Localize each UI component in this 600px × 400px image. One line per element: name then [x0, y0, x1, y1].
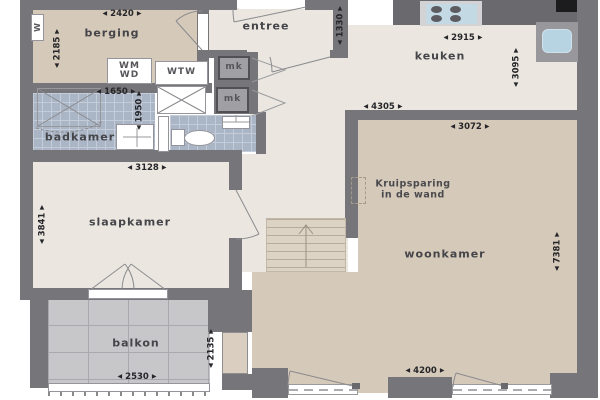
dim-value: 4305 — [371, 102, 395, 112]
dim-arrow-left: ◀ — [406, 368, 411, 374]
shaft-box — [157, 86, 206, 114]
burner-2 — [450, 6, 461, 13]
dim-keuken-width: ◀2915▶ — [433, 32, 493, 43]
dim-value: 2530 — [125, 372, 149, 382]
dim-woonkamer-height: ◀7381▶ — [552, 222, 563, 282]
dim-woonkamer-width-bottom: ◀4200▶ — [395, 365, 455, 376]
toilet-bowl — [184, 130, 215, 146]
dim-arrow-right: ▶ — [137, 11, 142, 17]
wall-badkamer-slaapkamer — [20, 150, 242, 162]
kitchen-sink — [542, 29, 572, 53]
hand-basin — [222, 116, 250, 129]
washer-dryer-box: WMWD — [107, 58, 152, 84]
room-label-slaapkamer: slaapkamer — [89, 216, 171, 229]
dim-value: 3128 — [135, 163, 159, 173]
floor-plan: W WMWD WTW mk mk — [0, 0, 600, 400]
dim-arrow-right: ▶ — [152, 374, 157, 380]
dim-value: 4200 — [413, 366, 437, 376]
dim-arrow-left: ◀ — [513, 82, 519, 87]
dim-arrow-left: ◀ — [118, 374, 123, 380]
dim-value: 3095 — [511, 56, 521, 80]
dim-arrow-right: ▶ — [440, 368, 445, 374]
wall-hall-woonkamer — [345, 110, 358, 238]
dim-value: 2420 — [110, 9, 134, 19]
room-label-berging: berging — [84, 27, 139, 40]
dim-arrow-left: ◀ — [364, 104, 369, 110]
dim-arrow-left: ◀ — [451, 124, 456, 130]
burner-3 — [431, 15, 442, 22]
wall-bottom-a — [252, 368, 288, 398]
door-toilet — [158, 116, 169, 152]
dim-value: 3072 — [458, 122, 482, 132]
wall-bottom-b — [388, 377, 452, 398]
door-woonkamer-balkon — [222, 332, 248, 374]
wall-right-outer — [577, 0, 598, 398]
dim-arrow-left: ◀ — [337, 40, 343, 45]
room-label-badkamer: badkamer — [45, 131, 115, 144]
door-opening-berging — [198, 14, 208, 50]
dim-arrow-left: ◀ — [103, 11, 108, 17]
window-woonkamer-door2 — [452, 384, 552, 395]
meter-cupboard-1-label: mk — [225, 63, 242, 72]
dim-arrow-left: ◀ — [128, 165, 133, 171]
kruipsparing-recess — [351, 177, 366, 204]
dim-woonkamer-width-top: ◀3072▶ — [440, 121, 500, 132]
dim-arrow-left: ◀ — [39, 239, 45, 244]
hall-floor-upper — [250, 53, 348, 115]
dim-value: 2135 — [206, 337, 216, 361]
dim-berging-height: ◀2185▶ — [52, 19, 63, 79]
burner-4 — [450, 15, 461, 22]
dim-value: 2185 — [52, 37, 62, 61]
room-label-woonkamer: woonkamer — [404, 248, 485, 261]
dim-arrow-right: ▶ — [554, 232, 560, 237]
dim-value: 1330 — [335, 14, 345, 38]
meter-cupboard-2: mk — [216, 87, 249, 113]
balkon-railing — [48, 383, 210, 392]
room-label-balkon: balkon — [112, 337, 159, 350]
meter-cupboard-2-label: mk — [224, 95, 241, 104]
dim-arrow-right: ▶ — [485, 124, 490, 130]
wall-balkon-right-lower — [222, 374, 252, 390]
balkon-railing-ticks — [48, 392, 210, 396]
door-opening-slaapkamer — [229, 190, 242, 238]
staircase — [266, 218, 346, 272]
balkon-door-band — [88, 289, 168, 299]
dim-berging-width: ◀2420▶ — [92, 8, 152, 19]
wall-toilet-hall — [256, 112, 266, 154]
dim-arrow-right: ▶ — [54, 29, 60, 34]
dim-arrow-right: ▶ — [208, 329, 214, 334]
meter-cupboard-1: mk — [218, 56, 250, 80]
wall-bottom-c — [550, 373, 578, 398]
dim-arrow-left: ◀ — [97, 89, 102, 95]
dim-arrow-left: ◀ — [554, 266, 560, 271]
dryer-label: WD — [120, 70, 139, 80]
room-woonkamer-floor-patch — [358, 377, 388, 393]
dim-arrow-left: ◀ — [136, 125, 142, 130]
dim-arrow-left: ◀ — [208, 363, 214, 368]
toilet-cistern — [171, 129, 185, 146]
dim-value: 7381 — [552, 240, 562, 264]
dim-arrow-right: ▶ — [136, 91, 142, 96]
dim-arrow-right: ▶ — [398, 104, 403, 110]
dim-arrow-right: ▶ — [478, 35, 483, 41]
dim-slaapkamer-height: ◀3841▶ — [37, 195, 48, 255]
burner-1 — [431, 6, 442, 13]
dim-arrow-left: ◀ — [444, 35, 449, 41]
room-label-entree: entree — [243, 20, 290, 33]
front-door-opening — [239, 1, 305, 9]
dim-value: 1950 — [134, 99, 144, 123]
dim-arrow-left: ◀ — [54, 63, 60, 68]
room-label-keuken: keuken — [415, 50, 466, 63]
wall-balkon-left — [30, 292, 48, 388]
dim-arrow-right: ▶ — [337, 6, 343, 11]
dim-value: 2915 — [451, 33, 475, 43]
heat-recovery-box: WTW — [155, 61, 208, 85]
dim-balkon-height: ◀2135▶ — [206, 319, 217, 379]
dim-arrow-right: ▶ — [513, 48, 519, 53]
water-meter-box: W — [31, 14, 44, 41]
dim-slaapkamer-width: ◀3128▶ — [117, 162, 177, 173]
dim-entree-height: ◀1330▶ — [335, 0, 346, 56]
water-meter-label: W — [33, 23, 42, 32]
dim-value: 3841 — [37, 213, 47, 237]
dim-badkamer-height: ◀1950▶ — [134, 81, 145, 141]
heat-recovery-label: WTW — [167, 68, 196, 77]
annotation-kruipsparing: Kruipsparing in de wand — [375, 179, 450, 202]
dim-arrow-right: ▶ — [162, 165, 167, 171]
dim-keuken-height: ◀3095▶ — [511, 38, 522, 98]
washer-dryer-label: WMWD — [119, 62, 140, 81]
dim-arrow-right: ▶ — [39, 205, 45, 210]
dim-hal-width: ◀4305▶ — [353, 101, 413, 112]
dim-balkon-width: ◀2530▶ — [107, 371, 167, 382]
dim-value: 1650 — [104, 87, 128, 97]
hall-floor-mid — [262, 112, 348, 156]
window-woonkamer-door1 — [288, 384, 358, 395]
